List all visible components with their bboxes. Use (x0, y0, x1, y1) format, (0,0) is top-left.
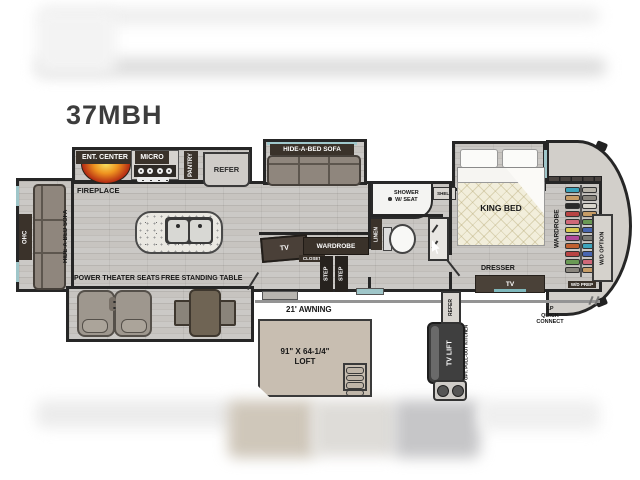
fireplace-label: FIREPLACE (77, 186, 120, 195)
loft-label: 91" X 64-1/4" LOFT (266, 347, 344, 367)
outdoor-refrigerator: REFER (441, 291, 461, 324)
griddle-burner-icon (452, 385, 464, 397)
vanity-sink (428, 217, 449, 261)
clothes-bar (565, 267, 580, 273)
bedroom-wall (449, 183, 452, 255)
rear-sofa-label: HIDE-A-BED SOFA (61, 198, 71, 274)
hide-a-bed-sofa-label: HIDE-A-BED SOFA (283, 146, 341, 153)
clothes-bar (565, 251, 580, 257)
seat-console-icon (109, 297, 116, 311)
stove-knobs (137, 177, 169, 182)
griddle-burner-icon (437, 385, 449, 397)
hide-a-bed-sofa: HIDE-A-BED SOFA (270, 144, 354, 155)
toilet (389, 224, 416, 254)
clothes-bar (565, 259, 580, 265)
stove-burners (134, 165, 176, 177)
awning-rail (255, 300, 600, 303)
burner-icon (147, 168, 153, 174)
pillow (460, 149, 498, 168)
step-label: STEP (339, 267, 345, 281)
clothes-bar (565, 195, 580, 201)
ohc-label: OHC (23, 230, 29, 243)
bedroom-tv-label: TV (506, 281, 514, 288)
awning-label: 21' AWNING (286, 305, 332, 314)
ladder-rung (346, 375, 364, 382)
dining-chair (219, 300, 236, 326)
entry-door (356, 288, 384, 295)
bg-blur-band-bottom-4 (394, 400, 480, 458)
clothes-bar (582, 187, 597, 193)
pantry: PANTRY (184, 151, 198, 179)
bedroom-wall (449, 272, 452, 289)
floorplan-screenshot: 37MBH OHC HIDE-A-BED SOFA ENT. CENTER FI… (0, 0, 640, 480)
clothes-bar (565, 219, 580, 225)
sink-basin (168, 220, 189, 242)
island-sink (165, 217, 213, 244)
burner-icon (157, 168, 163, 174)
step-1: STEP (320, 256, 333, 292)
clothes-bar (565, 187, 580, 193)
ent-center-label: ENT. CENTER (82, 154, 128, 161)
mid-tv-label: TV (280, 245, 290, 253)
ent-center: ENT. CENTER (76, 151, 134, 164)
linen-label: LINEN (374, 227, 380, 242)
linen-cabinet: LINEN (371, 219, 382, 250)
tv-lift-label: TV LIFT (441, 326, 459, 380)
opt-pullout-kitchen-label: OPT. PULL-OUT KITCHEN (462, 322, 470, 382)
rear-slide-window-2 (16, 262, 19, 282)
theater-seats-label: POWER THEATER SEATS (74, 275, 160, 282)
shelf: SHELF (433, 187, 456, 200)
right-wardrobe-label: WARDROBE (552, 200, 562, 258)
bg-blur-band-top-1 (40, 8, 600, 24)
mid-wardrobe: WARDROBE (303, 237, 369, 255)
ladder-rung (346, 390, 364, 397)
bg-blur-band-bottom-3 (312, 400, 396, 456)
table-label: FREE STANDING TABLE (161, 275, 242, 282)
mid-unit-back-wall (259, 232, 368, 235)
tv-lift: TV LIFT (427, 322, 465, 384)
lp-line2: QUICK (530, 313, 570, 320)
dining-table (189, 289, 221, 337)
outdoor-refer-label: REFER (445, 294, 457, 321)
refrigerator-label: REFER (214, 165, 239, 174)
ohc-cabinet: OHC (19, 214, 32, 260)
king-bed-label: KING BED (471, 203, 531, 213)
lp-line1: LP (530, 306, 570, 313)
ladder-rung (346, 382, 364, 389)
clothes-bar (565, 227, 580, 233)
lp-quick-connect-label: LP QUICK CONNECT (530, 306, 570, 326)
shower-label: SHOWER W/ SEAT (394, 190, 419, 203)
theater-seat (114, 290, 152, 337)
burner-icon (138, 168, 144, 174)
wd-option-cabinet: W/D OPTION (592, 214, 613, 282)
microwave-label: MICRO (140, 154, 163, 161)
dresser-label: DRESSER (481, 265, 515, 272)
clothes-bar (565, 235, 580, 241)
wd-option-label: W/D OPTION (596, 218, 609, 278)
bg-blur-band-top-3 (36, 10, 116, 75)
rear-slide-window (16, 186, 19, 206)
bg-blur-band-bottom-2 (228, 400, 316, 458)
clothes-bar (565, 243, 580, 249)
mid-wardrobe-label: WARDROBE (317, 243, 356, 250)
shower-label-line1: SHOWER (394, 190, 419, 197)
bg-blur-band-top-2 (36, 58, 606, 76)
ladder-rung (346, 367, 364, 374)
shower-label-line2: W/ SEAT (394, 197, 419, 204)
shower-drain-icon (388, 197, 392, 201)
sink-basin (190, 220, 211, 242)
refrigerator: REFER (203, 152, 250, 187)
clothes-bar (582, 203, 597, 209)
microwave: MICRO (135, 151, 169, 164)
step-label: STEP (324, 267, 330, 281)
hide-a-bed-sofa-graphic (267, 155, 361, 186)
entry-step-platform (262, 291, 298, 300)
burner-icon (166, 168, 172, 174)
lp-line3: CONNECT (530, 319, 570, 326)
floorplan-title: 37MBH (66, 100, 163, 131)
outdoor-griddle (433, 380, 467, 401)
step-2: STEP (335, 256, 348, 292)
closet-label: CLOSET (303, 256, 321, 261)
loft-label-line1: 91" X 64-1/4" (266, 347, 344, 357)
clothes-bar (565, 211, 580, 217)
bg-blur-band-bottom-1 (36, 400, 236, 428)
clothes-bar (582, 195, 597, 201)
wd-prep-label: W/D PREP (571, 282, 593, 287)
loft-label-line2: LOFT (266, 357, 344, 367)
loft-ladder (343, 363, 367, 391)
wd-prep: W/D PREP (568, 281, 596, 288)
bg-blur-band-bottom-5 (478, 400, 600, 430)
clothes-bar (565, 203, 580, 209)
dining-chair (174, 300, 191, 326)
bedroom-tv-screen (494, 289, 526, 292)
pillow (502, 149, 538, 168)
pantry-label: PANTRY (188, 153, 194, 177)
